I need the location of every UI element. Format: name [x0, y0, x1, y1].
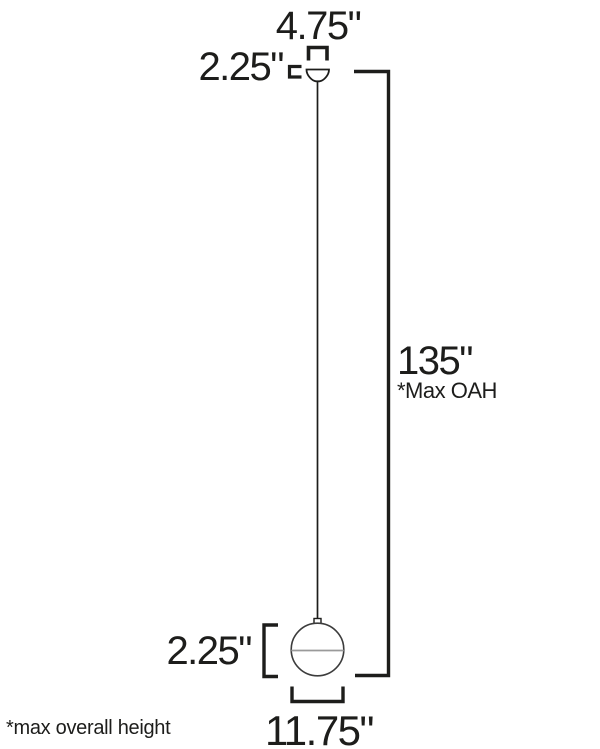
- max-height-label: 135": [397, 341, 472, 381]
- canopy-height-label: 2.25": [198, 47, 283, 87]
- max-height-note: *Max OAH: [397, 380, 497, 402]
- fixture-height-bracket: [264, 625, 278, 677]
- dimension-diagram: 4.75" 2.25" 135" *Max OAH 2.25" 11.75" *…: [0, 0, 600, 749]
- fixture-width-bracket: [292, 687, 343, 702]
- diagram-linework: [0, 0, 600, 749]
- overall-height-bracket: [354, 72, 389, 676]
- canopy-width-label: 4.75": [276, 6, 361, 46]
- fixture-width-label: 11.75": [265, 710, 373, 749]
- canopy-shape: [307, 70, 330, 82]
- footnote-max-overall-height: *max overall height: [6, 718, 170, 738]
- canopy-width-bracket: [309, 48, 328, 61]
- globe-shade: [291, 623, 344, 676]
- fixture-height-label: 2.25": [166, 631, 251, 671]
- canopy-height-bracket: [290, 67, 302, 78]
